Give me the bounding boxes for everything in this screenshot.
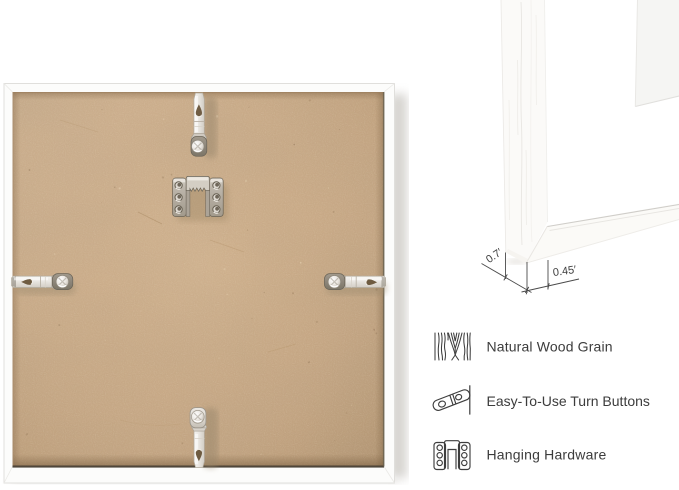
svg-text:Hanging Hardware: Hanging Hardware: [487, 446, 607, 462]
svg-text:Easy-To-Use Turn Buttons: Easy-To-Use Turn Buttons: [487, 393, 650, 409]
svg-text:Natural Wood Grain: Natural Wood Grain: [487, 339, 613, 355]
